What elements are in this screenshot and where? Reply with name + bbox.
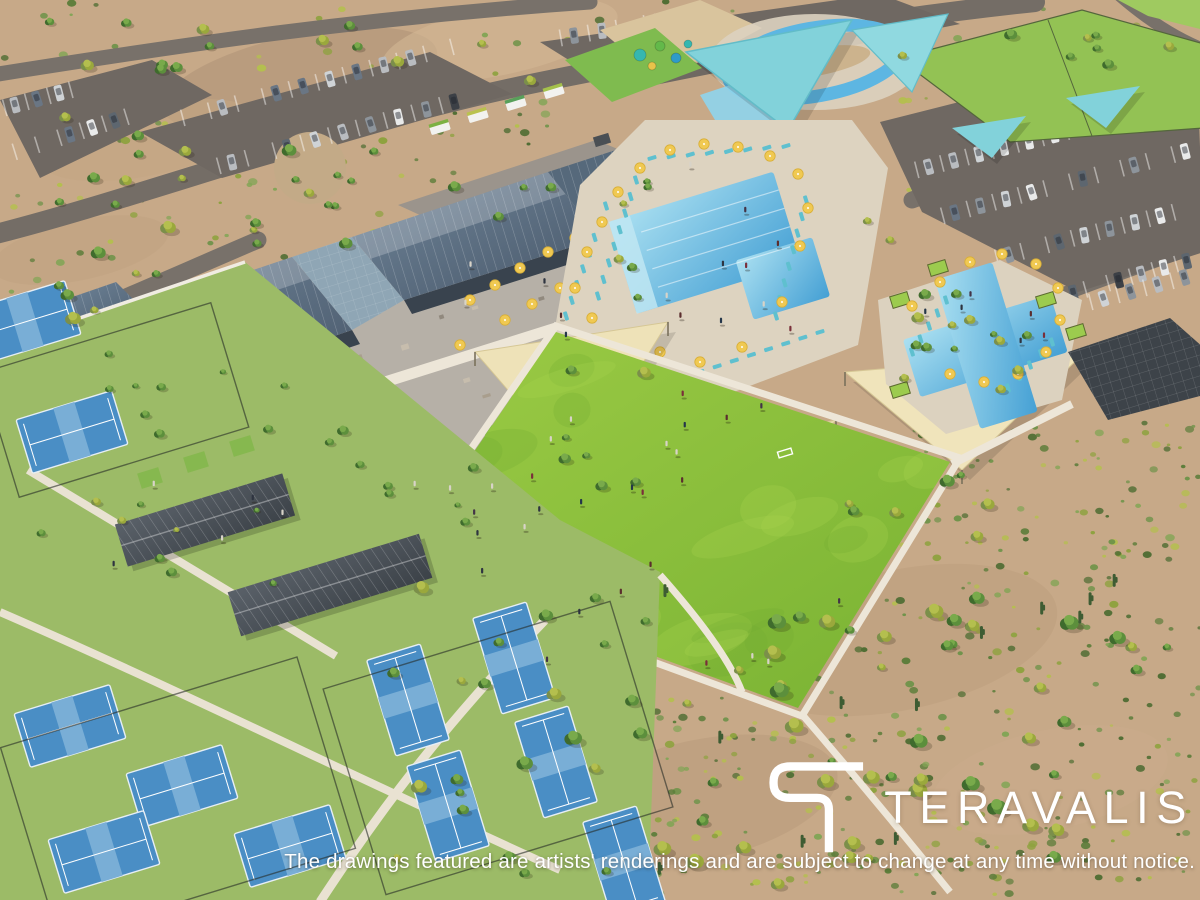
disclaimer-text: The drawings featured are artists' rende…: [284, 850, 1195, 874]
aerial-rendering: [0, 0, 1200, 900]
screenshot-root: TERAVALIS The drawings featured are arti…: [0, 0, 1200, 900]
